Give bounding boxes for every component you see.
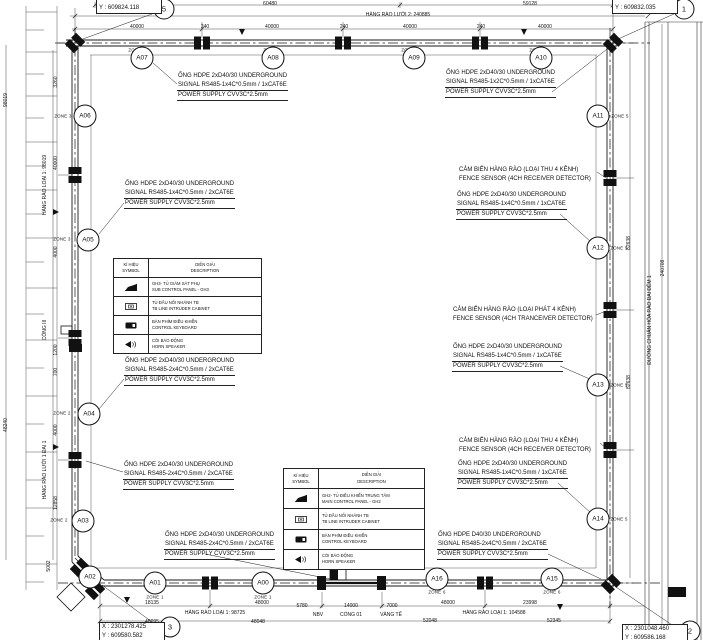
node-label: A14 — [592, 516, 604, 523]
node-label: A04 — [83, 411, 95, 418]
node-bubble: A04 — [78, 403, 101, 426]
zone-label: ZONE 1 — [254, 595, 271, 600]
dimension-label: 7000 — [386, 603, 397, 609]
coordinate-x: X : 2301278.425 — [102, 623, 162, 632]
dimension-label: VÀNG TẾ — [380, 612, 402, 618]
node-label: A13 — [592, 382, 604, 389]
dimension-label: 4000 — [53, 246, 59, 257]
node-label: A02 — [84, 574, 96, 581]
dimension-label: HÀNG RÀO LOẠI 1: 104588 — [462, 610, 525, 616]
node-bubble: A03 — [72, 510, 95, 533]
node-label: A09 — [408, 55, 420, 62]
tb-cabinet-icon — [294, 515, 308, 524]
node-label: A10 — [535, 55, 547, 62]
coordinate-y: Y : 609580.582 — [102, 632, 162, 640]
dimension-label: 40000 — [53, 156, 59, 170]
cable-annotation: ỐNG HDPE 2xD40/30 UNDERGROUNDSIGNAL RS48… — [445, 69, 556, 98]
node-bubble: A05 — [77, 229, 100, 252]
coordinate-x: X : 2301048.460 — [625, 625, 685, 634]
node-label: A03 — [77, 518, 89, 525]
node-bubble: A11 — [587, 105, 610, 128]
legend-row-main-control-panel: GH2- TỦ ĐIỀU KHIỂN TRUNG TÂMMAIN CONTROL… — [284, 488, 424, 508]
cable-annotation: ỐNG HDPE 2xD40/30 UNDERGROUNDSIGNAL RS48… — [177, 72, 288, 101]
legend-row-control-keyboard: BÀN PHÍM ĐIỀU KHIỂNCONTROL KEYBOARD — [284, 529, 424, 549]
node-bubble: A14 — [587, 508, 610, 531]
legend-row-control-keyboard: BÀN PHÍM ĐIỀU KHIỂNCONTROL KEYBOARD — [114, 315, 261, 334]
coordinate-callout: X : 2301278.425 Y : 609580.582 — [99, 622, 165, 640]
node-label: A16 — [431, 576, 443, 583]
zone-label: ZONE 5 — [610, 517, 627, 522]
dimension-label: 23998 — [523, 600, 537, 606]
node-label: A01 — [149, 580, 161, 587]
coordinate-callout: X : 2301048.460 Y : 609586.168 — [622, 624, 688, 640]
node-bubble: A02 — [79, 566, 102, 589]
coordinate-y: Y : 609832.035 — [615, 4, 675, 13]
legend-table-2: KÍ HIỆUSYMBOL DIỄN GIẢIDESCRIPTION GH2- … — [283, 468, 425, 570]
zone-label: ZONE 1 — [146, 595, 163, 600]
zone-label: ZONE 2 — [50, 518, 67, 523]
zone-label: ZONE 3 — [53, 237, 70, 242]
node-bubble: A06 — [74, 105, 97, 128]
keyboard-icon — [294, 535, 308, 544]
cable-annotation: ỐNG HDPE 2xD40/30 UNDERGROUNDSIGNAL RS48… — [456, 191, 567, 220]
dimension-label: 52345 — [547, 618, 561, 624]
node-label: A00 — [257, 580, 269, 587]
dimension-label: 18135 — [145, 600, 159, 606]
right-road-lines — [645, 22, 703, 640]
dimension-label: 12858 — [53, 496, 59, 510]
control-panel-icon — [124, 283, 138, 292]
dimension-label: 40000 — [403, 24, 417, 30]
node-label: A15 — [546, 576, 558, 583]
dimension-label: 40000 — [130, 24, 144, 30]
cable-annotation: CẢM BIẾN HÀNG RÀO (LOẠI THU 4 KÊNH)FENCE… — [458, 437, 592, 455]
node-bubble: A12 — [587, 237, 610, 260]
legend-header: KÍ HIỆUSYMBOL DIỄN GIẢIDESCRIPTION — [114, 259, 261, 277]
cable-annotation: ỐNG HDPE 2xD40/30 UNDERGROUNDSIGNAL RS48… — [457, 460, 568, 489]
dimension-label: 60480 — [263, 1, 277, 7]
dimension-label: 59128 — [523, 1, 537, 7]
dimension-label: HÀNG RÀO LƯỚI 2: 240885 — [366, 12, 430, 18]
legend-row-horn-speaker: CÒI BÁO ĐỘNGHORN SPEAKER — [284, 549, 424, 569]
node-bubble: A07 — [131, 47, 154, 70]
zone-label: ZONE 5 — [610, 246, 627, 251]
dimension-label: 14000 — [344, 603, 358, 609]
coordinate-y: Y : 609586.168 — [625, 634, 685, 640]
control-panel-icon — [294, 494, 308, 503]
dimension-label: 52048 — [423, 618, 437, 624]
dimension-label: HÀNG RÀO LOẠI 1: 98725 — [185, 610, 245, 616]
node-bubble: A13 — [587, 374, 610, 397]
dimension-label: 240708 — [660, 260, 666, 277]
cable-annotation: ỐNG HDPE 2xD40/30 UNDERGROUNDSIGNAL RS48… — [452, 343, 563, 372]
dimension-label: 1200 — [53, 344, 59, 355]
grid-bubble-label: 1 — [682, 5, 686, 14]
coordinate-y: Y : 609824.118 — [99, 4, 159, 13]
node-bubble: A01 — [144, 572, 167, 595]
dimension-label: 240 — [201, 24, 209, 30]
legend-row-sub-control-panel: GH3- TỦ GIÁM SÁT PHỤSUB CONTROL PANEL - … — [114, 277, 261, 296]
node-bubble: A15 — [541, 568, 564, 591]
cable-annotation: ỐNG HDPE 2xD40/30 UNDERGROUNDSIGNAL RS48… — [124, 180, 235, 209]
node-label: A06 — [79, 113, 91, 120]
node-bubble: A00 — [252, 572, 275, 595]
horn-speaker-icon — [124, 340, 138, 349]
dimension-label: ĐƯỜNG CHUẨN HÓA RÀO ĐAI ĐÊM 1 — [647, 275, 653, 364]
cable-annotation: CẢM BIẾN HÀNG RÀO (LOẠI PHÁT 4 KÊNH)FENC… — [452, 306, 594, 324]
legend-row-tb-cabinet: TỦ ĐẤU NỐI NHÁNH TBTB LINE INTRUDER CABI… — [114, 296, 261, 315]
dimension-label: 98019 — [3, 93, 9, 107]
dimension-label: CỔNG III — [42, 320, 48, 341]
dimension-label: 48048 — [251, 619, 265, 625]
legend-table-1: KÍ HIỆUSYMBOL DIỄN GIẢIDESCRIPTION GH3- … — [113, 258, 262, 354]
legend-row-horn-speaker: CÒI BÁO ĐỘNGHORN SPEAKER — [114, 334, 261, 353]
zone-label: ZONE 5 — [610, 383, 627, 388]
zone-label: ZONE 2 — [53, 411, 70, 416]
node-label: A07 — [136, 55, 148, 62]
dimension-label: HÀNG RÀO LOẠI 1: 98019 — [42, 155, 48, 215]
dimension-label: 700 — [53, 368, 59, 376]
legend-header: KÍ HIỆUSYMBOL DIỄN GIẢIDESCRIPTION — [284, 469, 424, 488]
node-label: A05 — [82, 237, 94, 244]
grid-bubble-label: 5 — [162, 5, 166, 14]
dimension-label: CỔNG 01 — [340, 612, 362, 618]
node-bubble: A09 — [403, 47, 426, 70]
cable-annotation: ỐNG HDPE 2xD40/30 UNDERGROUNDSIGNAL RS48… — [124, 357, 235, 386]
grid-bubble-label: 3 — [168, 623, 172, 632]
dimension-label: 4000 — [53, 424, 59, 435]
cable-annotation: CẢM BIẾN HÀNG RÀO (LOẠI THU 4 KÊNH)FENCE… — [458, 166, 592, 184]
cable-annotation: ỐNG HDPE 2xD40/30 UNDERGROUNDSIGNAL RS48… — [123, 461, 234, 490]
dimension-label: 3260 — [53, 76, 59, 87]
dimension-label: 240 — [340, 24, 348, 30]
grid-bubble-label: 2 — [688, 627, 692, 636]
node-label: A12 — [592, 245, 604, 252]
cable-annotation: ỐNG HDPE D40/30 UNDERGROUNDSIGNAL RS485-… — [437, 531, 548, 560]
coordinate-callout: X : 2301040.585 Y : 609832.035 — [612, 0, 678, 14]
node-label: A08 — [267, 55, 279, 62]
node-bubble: A10 — [530, 47, 553, 70]
perimeter-security-plan: 6048059128HÀNG RÀO LƯỚI 2: 2408854000024… — [0, 0, 703, 640]
dimension-label: 40000 — [265, 24, 279, 30]
dimension-label: 48000 — [441, 600, 455, 606]
tb-cabinet-icon — [124, 302, 138, 311]
node-bubble: A16 — [426, 568, 449, 591]
dimension-label: HÀNG RÀO LƯỚI 1 ĐAI 1 — [42, 441, 48, 500]
dimension-label: 48240 — [3, 418, 9, 432]
dimension-label: 48000 — [255, 600, 269, 606]
node-bubble: A08 — [262, 47, 285, 70]
dimension-label: 240 — [477, 24, 485, 30]
zone-label: ZONE 3 — [54, 114, 71, 119]
dimension-label: 5002 — [46, 560, 52, 571]
coordinate-callout: X : 2301230.438 Y : 609824.118 — [96, 0, 162, 14]
legend-row-tb-cabinet: TỦ ĐẤU NỐI NHÁNH TBTB LINE INTRUDER CABI… — [284, 508, 424, 528]
zone-label: ZONE 5 — [611, 114, 628, 119]
keyboard-icon — [124, 321, 138, 330]
horn-speaker-icon — [294, 555, 308, 564]
dimension-label: NBV — [313, 612, 323, 618]
dimension-label: 40000 — [538, 24, 552, 30]
dimension-label: 5780 — [296, 603, 307, 609]
cable-annotation: ỐNG HDPE 2xD40/30 UNDERGROUNDSIGNAL RS48… — [164, 531, 275, 560]
node-label: A11 — [592, 113, 603, 120]
